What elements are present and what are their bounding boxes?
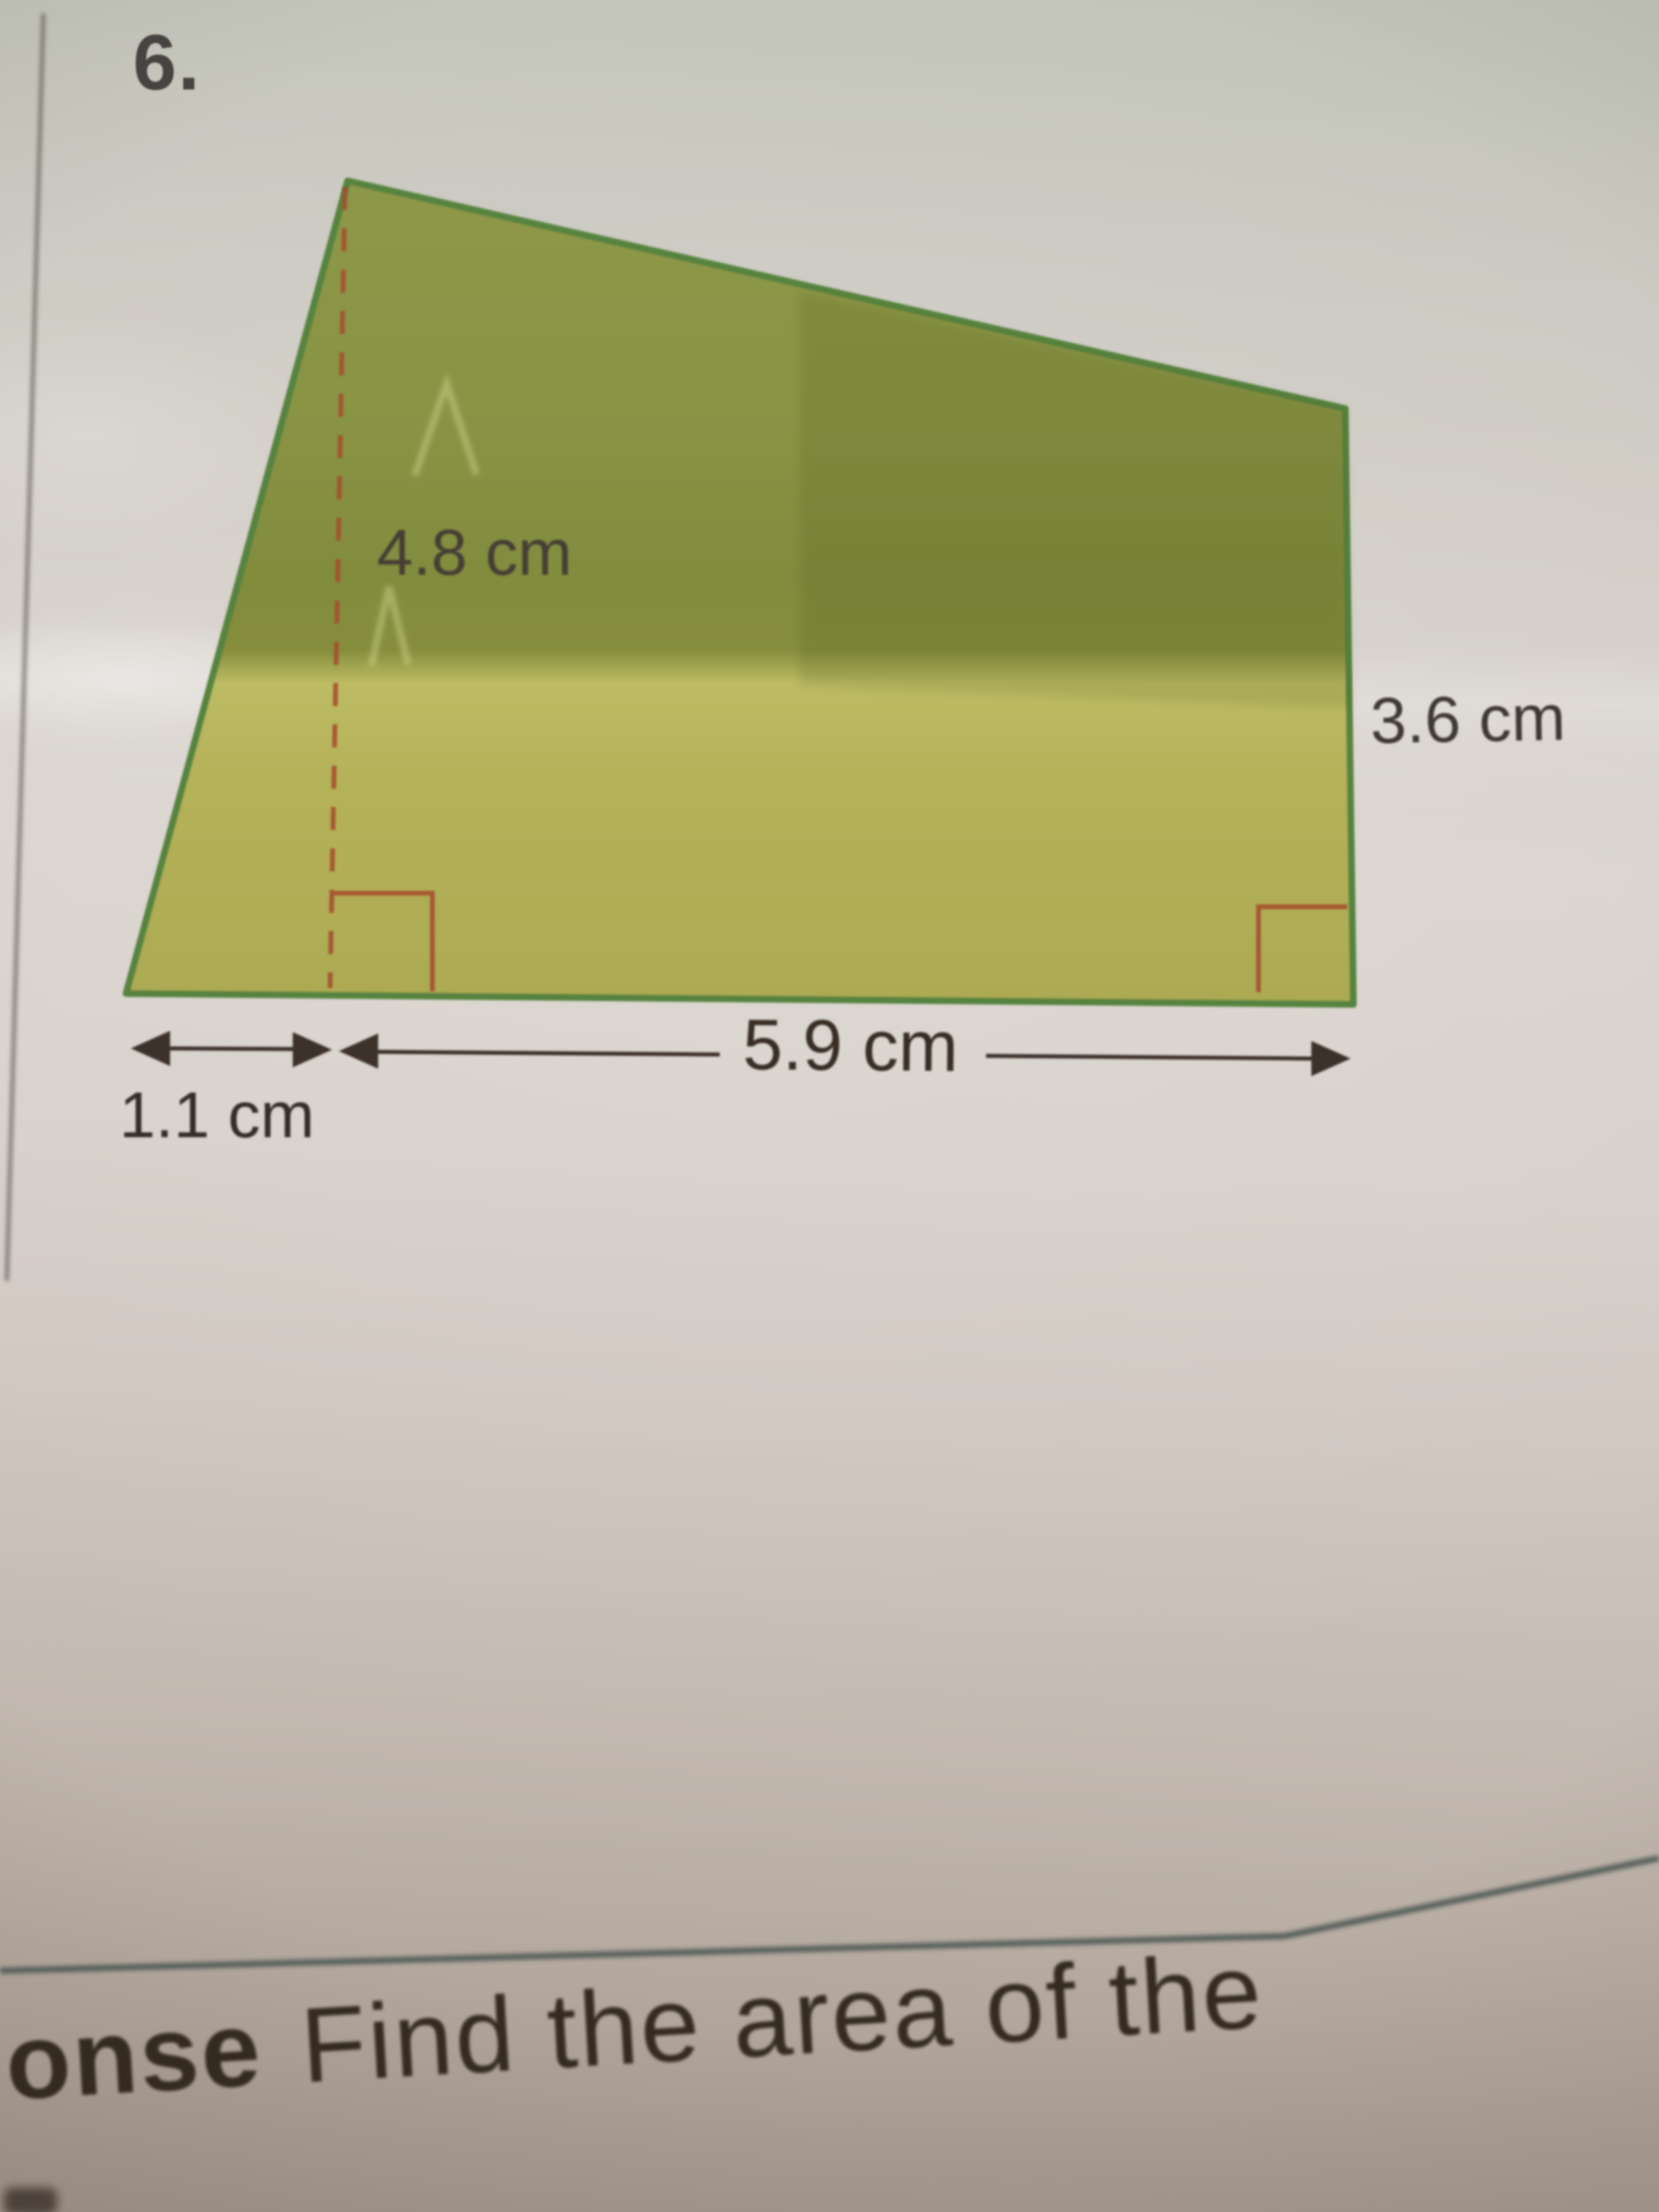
shape-fold-shadow — [800, 291, 1351, 708]
height-measurement-label: 4.8 cm — [377, 520, 572, 586]
prompt-cutoff-word: onse — [2, 1989, 265, 2122]
right-side-measurement-label: 3.6 cm — [1370, 685, 1566, 754]
worksheet-photo: 6. 4.8 cm 3.6 cm 5.9 cm 1.1 cm onseFind … — [0, 0, 1659, 2212]
page-margin-line — [7, 14, 43, 1281]
problem-number: 6. — [133, 23, 201, 102]
base-measurement-label: 5.9 cm — [715, 1008, 987, 1082]
arrowhead-left-icon — [131, 1031, 170, 1066]
section-divider-line — [0, 1858, 1659, 1971]
base-dimension-line-left — [374, 1052, 720, 1054]
offset-measurement-label: 1.1 cm — [119, 1083, 314, 1148]
arrowhead-right-icon — [1311, 1041, 1351, 1076]
arrowhead-right-icon — [293, 1032, 332, 1067]
base-dimension-line-right — [986, 1056, 1311, 1059]
cutoff-text-smudge — [4, 2188, 57, 2212]
offset-dimension-line — [163, 1048, 297, 1049]
arrowhead-left-icon — [339, 1033, 378, 1069]
